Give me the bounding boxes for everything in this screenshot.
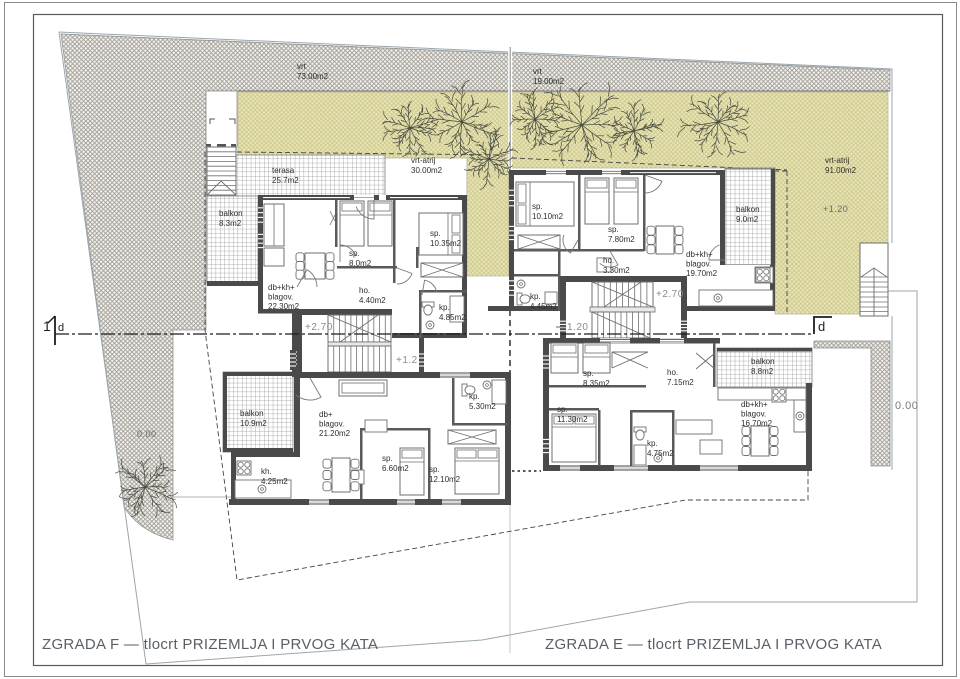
svg-text:balkon: balkon: [751, 357, 775, 366]
svg-text:9.0m2: 9.0m2: [736, 215, 759, 224]
svg-text:0.00: 0.00: [895, 400, 918, 412]
svg-text:8.35m2: 8.35m2: [583, 379, 610, 388]
svg-text:+1.20: +1.20: [823, 204, 848, 214]
svg-text:10.35m2: 10.35m2: [430, 239, 462, 248]
svg-text:4.45m2: 4.45m2: [530, 302, 557, 311]
svg-text:10.9m2: 10.9m2: [240, 419, 267, 428]
svg-text:19.00m2: 19.00m2: [533, 77, 565, 86]
svg-text:+2.70: +2.70: [656, 289, 684, 300]
svg-text:25.7m2: 25.7m2: [272, 176, 299, 185]
svg-text:8.0m2: 8.0m2: [349, 259, 372, 268]
svg-text:terasa: terasa: [272, 166, 295, 175]
svg-text:+1.2: +1.2: [396, 355, 418, 366]
svg-text:d: d: [818, 319, 825, 334]
svg-text:5.30m2: 5.30m2: [469, 402, 496, 411]
svg-text:3.30m2: 3.30m2: [603, 266, 630, 275]
svg-text:22.30m2: 22.30m2: [268, 302, 300, 311]
svg-text:1: 1: [43, 318, 51, 334]
svg-text:ho.: ho.: [603, 256, 614, 265]
svg-text:sp.: sp.: [583, 369, 594, 378]
svg-text:vrt-atrij: vrt-atrij: [411, 156, 436, 165]
svg-text:+2.70: +2.70: [305, 322, 333, 333]
svg-text:sp.: sp.: [429, 465, 440, 474]
svg-text:sp.: sp.: [557, 405, 568, 414]
svg-text:73.00m2: 73.00m2: [297, 72, 329, 81]
svg-text:sp.: sp.: [382, 454, 393, 463]
svg-text:8.8m2: 8.8m2: [751, 367, 774, 376]
svg-text:21.20m2: 21.20m2: [319, 429, 351, 438]
svg-text:30.00m2: 30.00m2: [411, 166, 443, 175]
svg-text:10.10m2: 10.10m2: [532, 212, 564, 221]
svg-text:6.60m2: 6.60m2: [382, 464, 409, 473]
svg-text:vrt-atrij: vrt-atrij: [825, 156, 850, 165]
svg-text:4.75m2: 4.75m2: [647, 449, 674, 458]
svg-text:4.85m2: 4.85m2: [439, 313, 466, 322]
svg-text:vrt: vrt: [533, 67, 543, 76]
svg-text:kp.: kp.: [647, 439, 658, 448]
svg-text:blagov.: blagov.: [741, 410, 766, 419]
svg-text:0.00: 0.00: [137, 429, 157, 439]
svg-text:blagov.: blagov.: [268, 293, 293, 302]
svg-text:kp.: kp.: [530, 292, 541, 301]
svg-text:db+kh+: db+kh+: [268, 283, 295, 292]
svg-text:91.00m2: 91.00m2: [825, 166, 857, 175]
svg-text:balkon: balkon: [219, 209, 243, 218]
svg-text:7.15m2: 7.15m2: [667, 378, 694, 387]
svg-text:19.70m2: 19.70m2: [686, 269, 718, 278]
svg-text:12.10m2: 12.10m2: [429, 475, 461, 484]
svg-text:balkon: balkon: [240, 409, 264, 418]
svg-text:blagov.: blagov.: [319, 420, 344, 429]
svg-text:1.20: 1.20: [567, 322, 588, 333]
svg-text:11.30m2: 11.30m2: [557, 415, 588, 424]
svg-text:db+: db+: [319, 410, 333, 419]
svg-text:sp.: sp.: [349, 249, 360, 258]
svg-text:balkon: balkon: [736, 205, 760, 214]
svg-text:8.3m2: 8.3m2: [219, 219, 242, 228]
svg-text:ZGRADA F — tlocrt PRIZEMLJA I: ZGRADA F — tlocrt PRIZEMLJA I PRVOG KATA: [42, 636, 378, 653]
svg-text:16.70m2: 16.70m2: [741, 419, 773, 428]
svg-text:sp.: sp.: [532, 202, 543, 211]
svg-text:ZGRADA E — tlocrt PRIZEMLJA I: ZGRADA E — tlocrt PRIZEMLJA I PRVOG KATA: [545, 636, 882, 653]
svg-text:ho.: ho.: [359, 286, 370, 295]
svg-text:4.40m2: 4.40m2: [359, 296, 386, 305]
svg-text:sp.: sp.: [430, 229, 441, 238]
svg-text:db+kh+: db+kh+: [686, 250, 713, 259]
svg-text:ho.: ho.: [667, 368, 678, 377]
svg-text:db+kh+: db+kh+: [741, 400, 768, 409]
svg-text:d: d: [58, 322, 64, 334]
svg-text:kp.: kp.: [469, 392, 480, 401]
svg-text:kh.: kh.: [261, 467, 272, 476]
svg-text:blagov.: blagov.: [686, 260, 711, 269]
svg-text:4.25m2: 4.25m2: [261, 477, 288, 486]
svg-text:7.80m2: 7.80m2: [608, 235, 635, 244]
svg-text:sp.: sp.: [608, 225, 619, 234]
svg-text:kp.: kp.: [439, 303, 450, 312]
svg-text:vrt: vrt: [297, 62, 307, 71]
